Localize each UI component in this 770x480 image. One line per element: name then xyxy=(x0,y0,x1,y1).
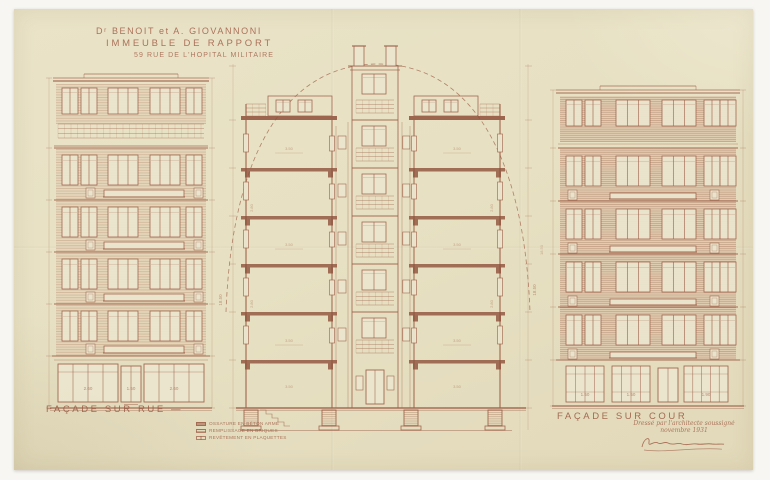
caption-facade-rue: FAÇADE SUR RUE — xyxy=(46,404,183,415)
legend-item: REMPLISSAGE EN BRIQUES xyxy=(196,427,308,434)
legend-swatch-plaquettes-icon xyxy=(196,436,206,440)
legend-label: REVÊTEMENT EN PLAQUETTES xyxy=(209,435,287,440)
facade-cour-drawing: 1.501.501.90 xyxy=(550,86,746,409)
facade-rue-drawing: 2.601.502.60 xyxy=(46,74,215,411)
architect-signature xyxy=(636,434,732,454)
dimension-label: 2.80 xyxy=(249,203,254,212)
dimension-label: 18.50 xyxy=(539,244,544,255)
dimension-label: 18.50 xyxy=(218,294,223,306)
dimension-label: 3.50 xyxy=(285,384,294,389)
dimension-label: 1.50 xyxy=(127,386,136,391)
dimension-label: 2.80 xyxy=(489,299,494,308)
legend-item: OSSATURE EN BÉTON ARMÉ xyxy=(196,420,308,427)
legend-item: REVÊTEMENT EN PLAQUETTES xyxy=(196,434,308,441)
scanned-drawing-page: { "title": { "line1": "Dʳ BENOIT et A. G… xyxy=(0,0,770,480)
dimension-label: 2.60 xyxy=(170,386,179,391)
legend-swatch-briques-icon xyxy=(196,429,206,433)
legend-label: OSSATURE EN BÉTON ARMÉ xyxy=(209,421,279,426)
note-line: novembre 1931 xyxy=(628,427,740,434)
dimension-label: 1.50 xyxy=(581,392,590,397)
dimension-label: 1.90 xyxy=(702,392,711,397)
dimension-label: 3.50 xyxy=(453,338,462,343)
architect-note: Dressé par l'architecte soussigné novemb… xyxy=(628,420,740,434)
dimension-label: 3.50 xyxy=(285,242,294,247)
dimension-label: 3.50 xyxy=(453,146,462,151)
dimension-label: 18.50 xyxy=(532,284,537,296)
dimension-label: 3.50 xyxy=(285,338,294,343)
coupe-drawing: 3.503.503.502.802.803.503.503.503.502.80… xyxy=(218,46,544,431)
dimension-label: 2.80 xyxy=(489,203,494,212)
note-line: Dressé par l'architecte soussigné xyxy=(628,420,740,427)
dimension-label: 3.50 xyxy=(453,242,462,247)
dimension-label: 3.50 xyxy=(285,146,294,151)
legend-label: REMPLISSAGE EN BRIQUES xyxy=(209,428,278,433)
materials-legend: OSSATURE EN BÉTON ARMÉ REMPLISSAGE EN BR… xyxy=(196,420,308,441)
dimension-label: 2.80 xyxy=(249,299,254,308)
dimension-label: 3.50 xyxy=(453,384,462,389)
legend-swatch-beton-icon xyxy=(196,422,206,426)
dimension-label: 2.60 xyxy=(84,386,93,391)
dimension-label: 1.50 xyxy=(627,392,636,397)
